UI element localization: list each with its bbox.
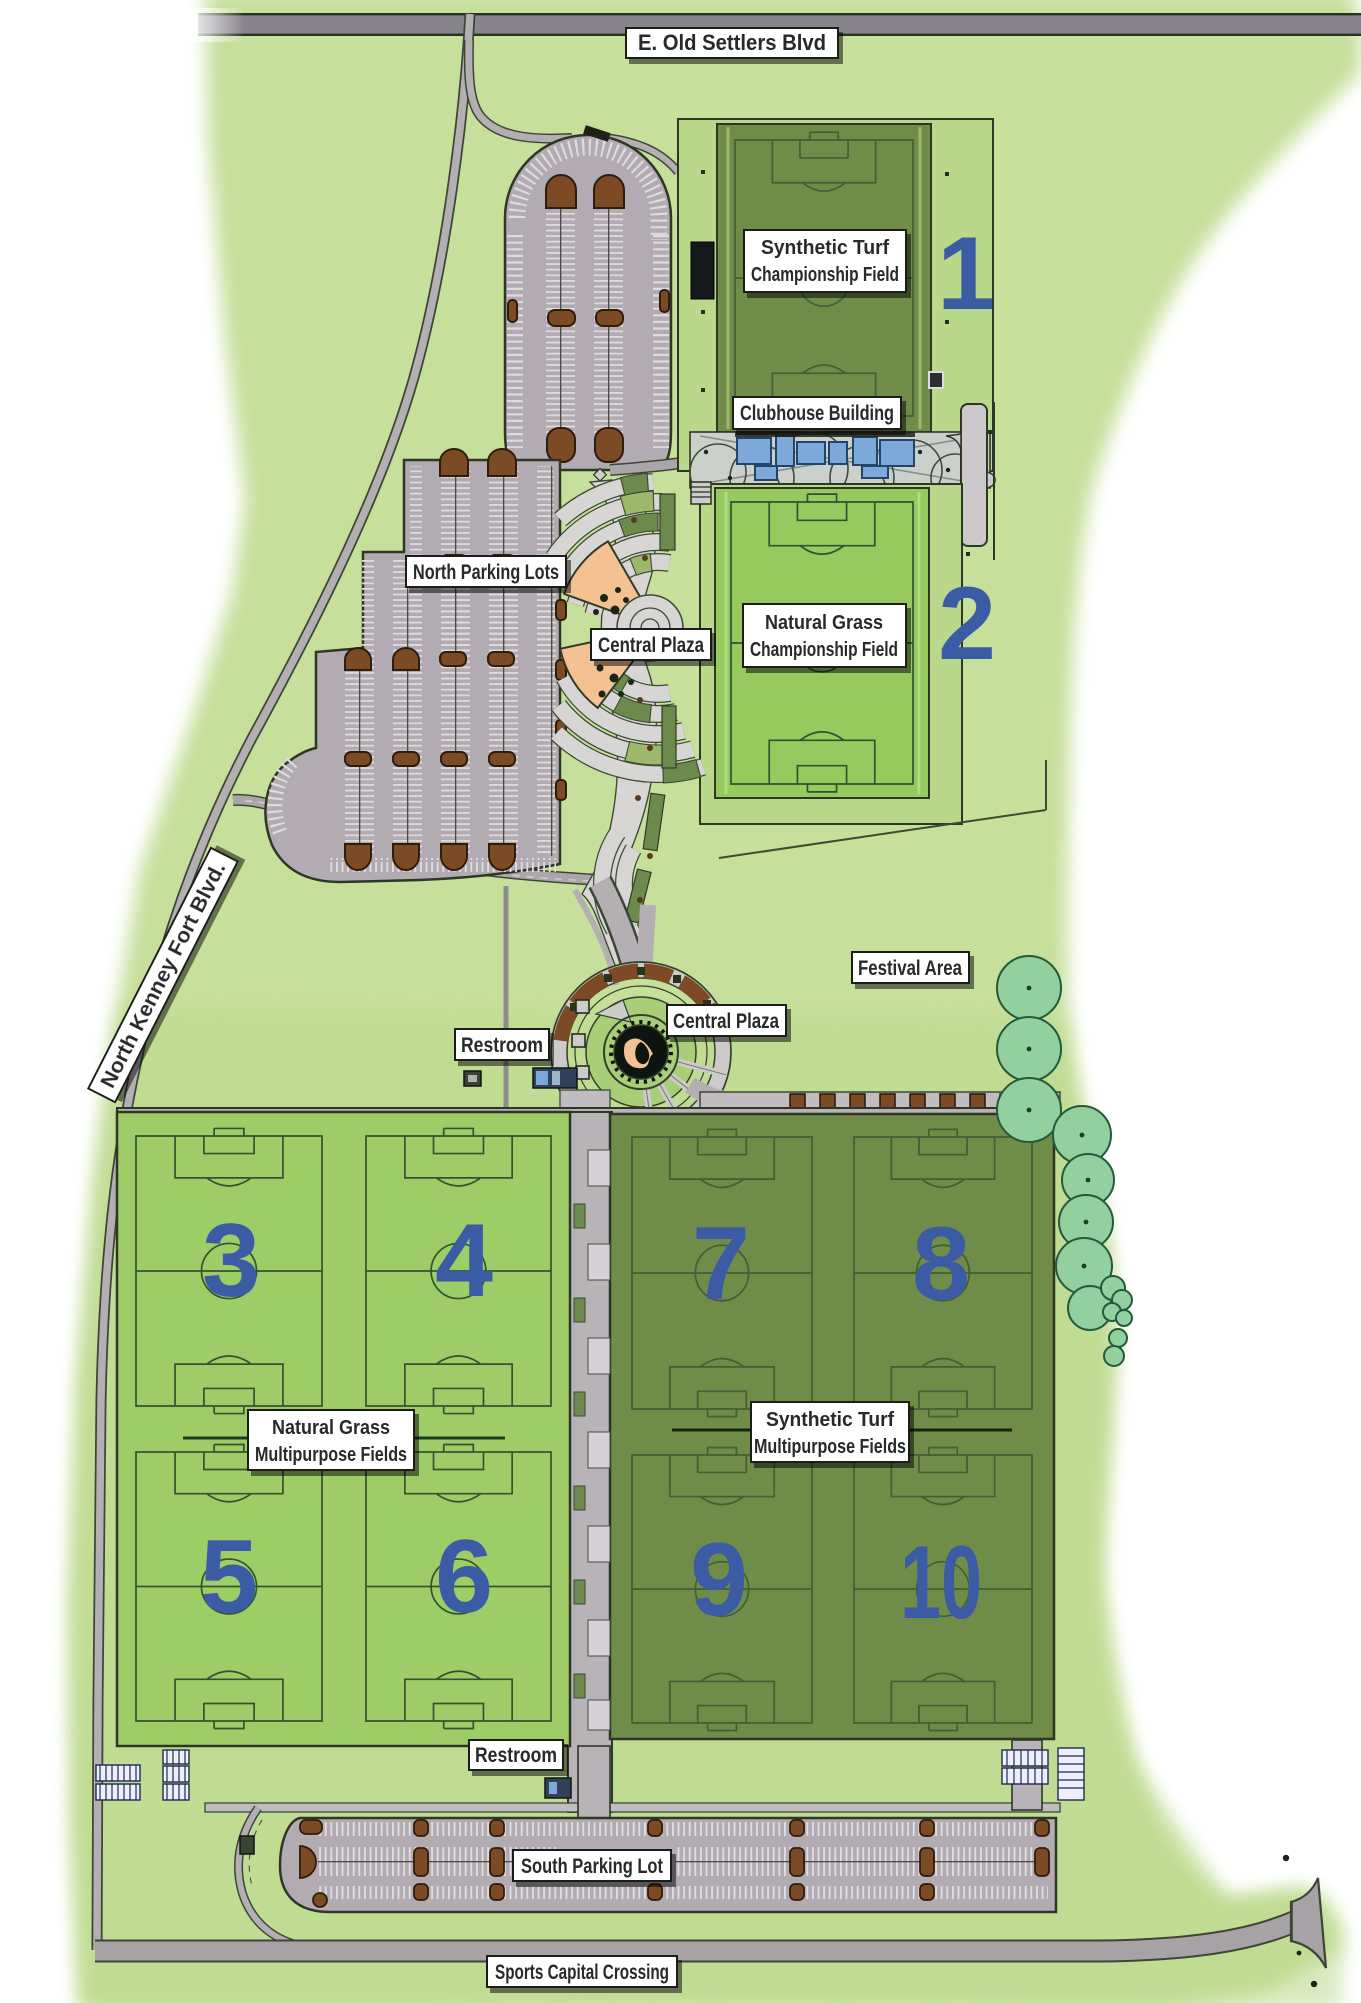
- svg-text:3: 3: [202, 1203, 260, 1319]
- svg-text:Championship Field: Championship Field: [751, 264, 899, 286]
- svg-text:8: 8: [912, 1206, 970, 1322]
- svg-text:Central Plaza: Central Plaza: [673, 1010, 779, 1033]
- svg-text:4: 4: [435, 1203, 493, 1319]
- svg-text:Festival Area: Festival Area: [858, 957, 962, 980]
- svg-text:Multipurpose Fields: Multipurpose Fields: [754, 1436, 906, 1458]
- svg-text:E. Old Settlers Blvd: E. Old Settlers Blvd: [638, 30, 826, 55]
- svg-text:Natural Grass: Natural Grass: [272, 1417, 390, 1439]
- svg-text:Central Plaza: Central Plaza: [598, 634, 704, 657]
- svg-text:Multipurpose Fields: Multipurpose Fields: [255, 1444, 407, 1466]
- svg-text:Natural Grass: Natural Grass: [765, 612, 883, 634]
- svg-text:9: 9: [690, 1522, 748, 1638]
- svg-text:Synthetic Turf: Synthetic Turf: [766, 1409, 894, 1431]
- svg-text:7: 7: [692, 1206, 750, 1322]
- svg-text:Restroom: Restroom: [475, 1744, 557, 1767]
- svg-text:1: 1: [937, 216, 995, 332]
- svg-text:Restroom: Restroom: [461, 1034, 543, 1057]
- svg-text:10: 10: [900, 1525, 982, 1641]
- svg-text:5: 5: [200, 1519, 258, 1635]
- svg-text:Sports Capital Crossing: Sports Capital Crossing: [495, 1961, 669, 1984]
- svg-text:North Parking Lots: North Parking Lots: [413, 561, 559, 584]
- svg-text:2: 2: [938, 566, 996, 682]
- svg-text:Synthetic Turf: Synthetic Turf: [761, 237, 889, 259]
- svg-text:Clubhouse Building: Clubhouse Building: [740, 402, 894, 425]
- svg-text:Championship Field: Championship Field: [750, 639, 898, 661]
- svg-text:6: 6: [435, 1519, 493, 1635]
- svg-text:South Parking Lot: South Parking Lot: [521, 1855, 663, 1878]
